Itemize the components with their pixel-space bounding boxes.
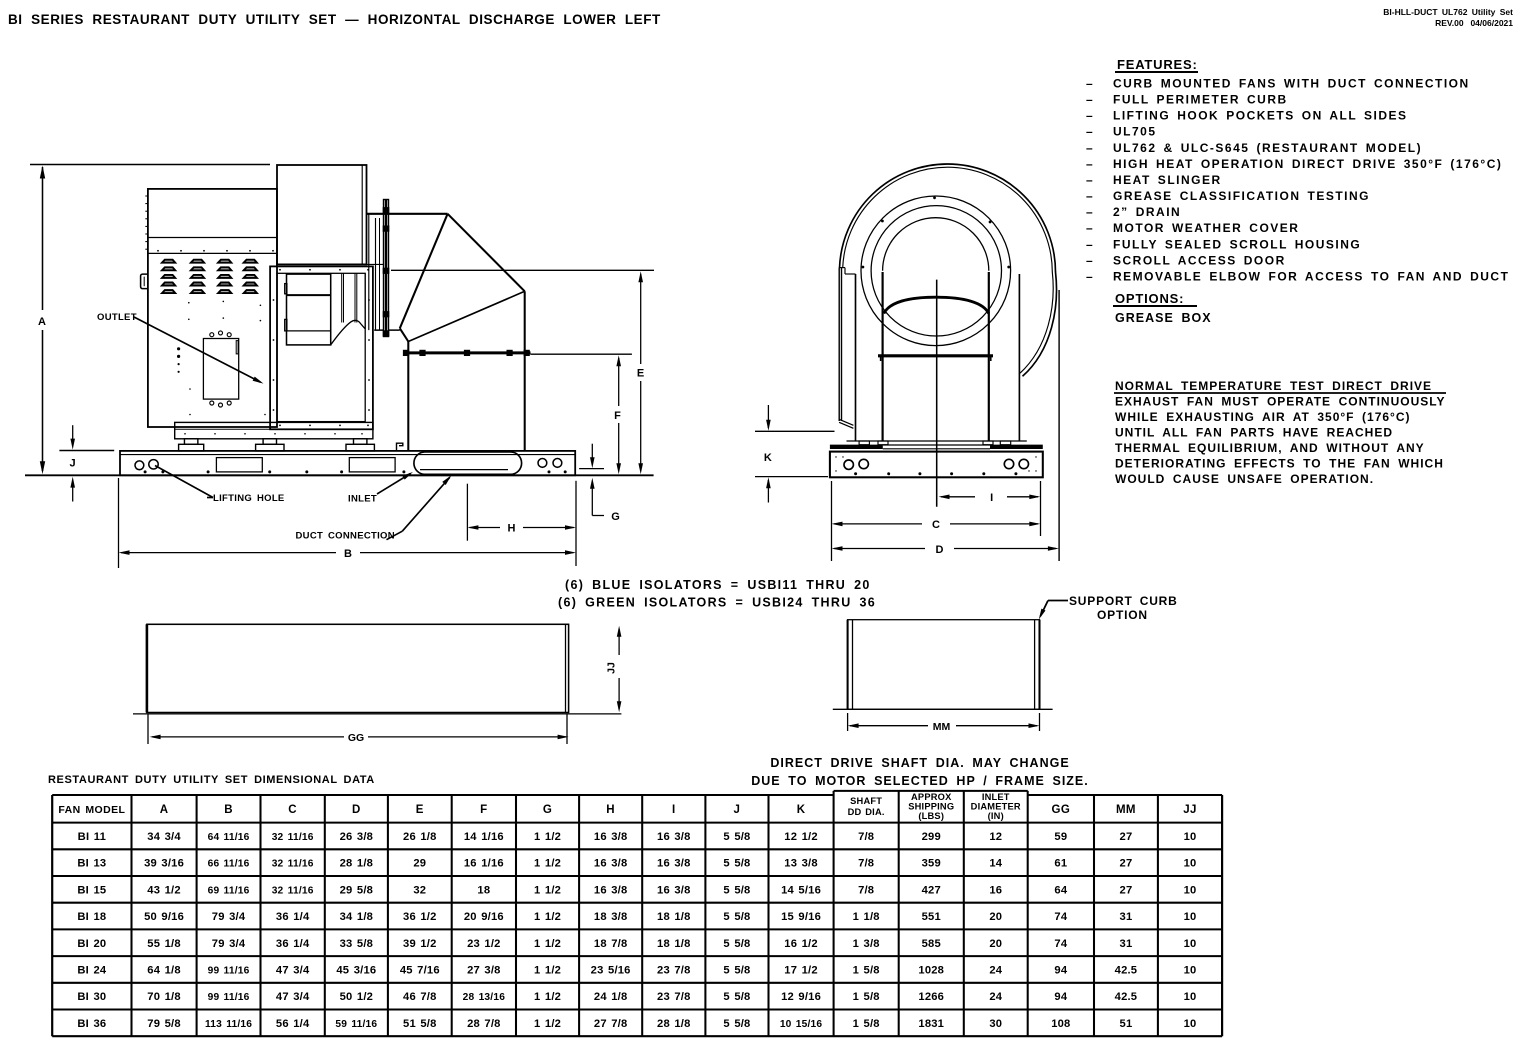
svg-text:BI 13: BI 13 bbox=[77, 858, 106, 870]
svg-text:UL762 & ULC-S645 (RESTAURANT M: UL762 & ULC-S645 (RESTAURANT MODEL) bbox=[1113, 141, 1422, 155]
svg-text:18 1/8: 18 1/8 bbox=[657, 938, 691, 950]
svg-text:32 11/16: 32 11/16 bbox=[272, 859, 314, 870]
svg-text:13 3/8: 13 3/8 bbox=[784, 858, 818, 870]
svg-text:10: 10 bbox=[1184, 938, 1197, 950]
svg-text:64: 64 bbox=[1054, 884, 1067, 896]
svg-text:INLET: INLET bbox=[348, 494, 377, 505]
svg-text:33 5/8: 33 5/8 bbox=[340, 938, 374, 950]
svg-text:DD DIA.: DD DIA. bbox=[848, 807, 885, 817]
svg-text:31: 31 bbox=[1120, 938, 1133, 950]
svg-text:27 3/8: 27 3/8 bbox=[467, 964, 501, 976]
svg-text:585: 585 bbox=[922, 938, 941, 950]
svg-text:INLET: INLET bbox=[982, 792, 1010, 802]
svg-text:34 1/8: 34 1/8 bbox=[340, 911, 374, 923]
svg-text:551: 551 bbox=[922, 911, 941, 923]
svg-text:1028: 1028 bbox=[918, 964, 944, 976]
svg-text:K: K bbox=[764, 452, 772, 464]
svg-text:DIRECT DRIVE SHAFT DIA. MAY CH: DIRECT DRIVE SHAFT DIA. MAY CHANGE bbox=[770, 756, 1069, 770]
svg-text:E: E bbox=[637, 368, 644, 380]
svg-text:FEATURES:: FEATURES: bbox=[1117, 57, 1198, 72]
svg-text:14 1/16: 14 1/16 bbox=[464, 831, 504, 843]
svg-text:50 1/2: 50 1/2 bbox=[340, 991, 374, 1003]
svg-text:J: J bbox=[734, 804, 741, 816]
svg-text:28 13/16: 28 13/16 bbox=[463, 992, 506, 1003]
svg-text:WHILE EXHAUSTING AIR AT 350°F: WHILE EXHAUSTING AIR AT 350°F (176°C) bbox=[1115, 410, 1411, 424]
svg-text:16 1/2: 16 1/2 bbox=[784, 938, 818, 950]
svg-text:51 5/8: 51 5/8 bbox=[403, 1018, 437, 1030]
svg-text:BI 36: BI 36 bbox=[77, 1018, 106, 1030]
svg-text:–: – bbox=[1086, 93, 1093, 107]
svg-text:–: – bbox=[1086, 221, 1093, 235]
svg-text:12: 12 bbox=[989, 831, 1002, 843]
svg-text:10 15/16: 10 15/16 bbox=[780, 1019, 823, 1030]
svg-text:MM: MM bbox=[933, 721, 951, 733]
svg-text:UL705: UL705 bbox=[1113, 125, 1157, 139]
svg-text:A: A bbox=[38, 316, 46, 328]
svg-text:WOULD CAUSE UNSAFE OPERATION.: WOULD CAUSE UNSAFE OPERATION. bbox=[1115, 472, 1374, 486]
svg-text:E: E bbox=[416, 804, 424, 816]
svg-text:F: F bbox=[480, 804, 487, 816]
svg-text:24: 24 bbox=[989, 991, 1002, 1003]
svg-text:45 7/16: 45 7/16 bbox=[400, 964, 440, 976]
svg-text:29: 29 bbox=[413, 858, 426, 870]
svg-text:64 1/8: 64 1/8 bbox=[147, 964, 181, 976]
svg-text:NORMAL TEMPERATURE TEST DIRECT: NORMAL TEMPERATURE TEST DIRECT DRIVE bbox=[1115, 379, 1432, 393]
svg-text:27: 27 bbox=[1120, 884, 1133, 896]
svg-text:99 11/16: 99 11/16 bbox=[208, 965, 250, 976]
svg-text:16 3/8: 16 3/8 bbox=[594, 858, 628, 870]
svg-text:UNTIL ALL FAN PARTS HAVE REACH: UNTIL ALL FAN PARTS HAVE REACHED bbox=[1115, 426, 1393, 440]
svg-text:39 1/2: 39 1/2 bbox=[403, 938, 437, 950]
svg-text:GG: GG bbox=[348, 732, 364, 744]
svg-text:I: I bbox=[990, 492, 993, 504]
svg-text:74: 74 bbox=[1054, 911, 1067, 923]
svg-text:–: – bbox=[1086, 269, 1093, 283]
svg-text:JJ: JJ bbox=[606, 662, 618, 674]
svg-text:DUE TO MOTOR SELECTED HP / FRA: DUE TO MOTOR SELECTED HP / FRAME SIZE. bbox=[751, 774, 1089, 788]
svg-text:MOTOR WEATHER COVER: MOTOR WEATHER COVER bbox=[1113, 221, 1299, 235]
svg-text:B: B bbox=[344, 548, 352, 560]
svg-text:12 9/16: 12 9/16 bbox=[781, 991, 821, 1003]
svg-text:1 1/2: 1 1/2 bbox=[534, 911, 561, 923]
svg-text:I: I bbox=[672, 804, 676, 816]
svg-text:26 1/8: 26 1/8 bbox=[403, 831, 437, 843]
svg-text:23 1/2: 23 1/2 bbox=[467, 938, 501, 950]
svg-text:–: – bbox=[1086, 77, 1093, 91]
svg-text:16: 16 bbox=[989, 884, 1002, 896]
svg-text:SCROLL ACCESS DOOR: SCROLL ACCESS DOOR bbox=[1113, 253, 1286, 267]
svg-text:GG: GG bbox=[1051, 804, 1070, 816]
svg-text:32 11/16: 32 11/16 bbox=[272, 832, 314, 843]
svg-text:BI-HLL-DUCT UL762 Utility Set: BI-HLL-DUCT UL762 Utility Set bbox=[1383, 7, 1513, 17]
svg-text:B: B bbox=[224, 804, 233, 816]
svg-text:42.5: 42.5 bbox=[1115, 964, 1138, 976]
svg-text:27: 27 bbox=[1120, 831, 1133, 843]
svg-text:10: 10 bbox=[1184, 911, 1197, 923]
svg-text:32 11/16: 32 11/16 bbox=[272, 885, 314, 896]
svg-text:–: – bbox=[1086, 157, 1093, 171]
svg-text:BI 15: BI 15 bbox=[77, 884, 106, 896]
svg-text:–: – bbox=[1086, 189, 1093, 203]
svg-text:20 9/16: 20 9/16 bbox=[464, 911, 504, 923]
svg-text:34 3/4: 34 3/4 bbox=[147, 831, 181, 843]
svg-text:HEAT SLINGER: HEAT SLINGER bbox=[1113, 173, 1222, 187]
svg-text:45 3/16: 45 3/16 bbox=[336, 964, 376, 976]
svg-text:5 5/8: 5 5/8 bbox=[723, 991, 750, 1003]
svg-text:66 11/16: 66 11/16 bbox=[208, 859, 250, 870]
svg-text:113 11/16: 113 11/16 bbox=[205, 1019, 252, 1030]
svg-text:47 3/4: 47 3/4 bbox=[276, 991, 310, 1003]
svg-text:RESTAURANT DUTY UTILITY SET DI: RESTAURANT DUTY UTILITY SET DIMENSIONAL … bbox=[48, 774, 375, 786]
svg-text:79 5/8: 79 5/8 bbox=[147, 1018, 181, 1030]
svg-text:10: 10 bbox=[1184, 831, 1197, 843]
svg-text:23 7/8: 23 7/8 bbox=[657, 964, 691, 976]
svg-text:18 7/8: 18 7/8 bbox=[594, 938, 628, 950]
svg-text:7/8: 7/8 bbox=[858, 831, 874, 843]
svg-text:FULL PERIMETER CURB: FULL PERIMETER CURB bbox=[1113, 93, 1288, 107]
svg-text:43 1/2: 43 1/2 bbox=[147, 884, 181, 896]
svg-text:D: D bbox=[352, 804, 361, 816]
svg-text:99 11/16: 99 11/16 bbox=[208, 992, 250, 1003]
svg-text:10: 10 bbox=[1184, 964, 1197, 976]
svg-text:5 5/8: 5 5/8 bbox=[723, 964, 750, 976]
svg-text:REMOVABLE ELBOW FOR ACCESS TO: REMOVABLE ELBOW FOR ACCESS TO FAN AND DU… bbox=[1113, 269, 1509, 283]
svg-text:1 1/2: 1 1/2 bbox=[534, 964, 561, 976]
svg-text:24: 24 bbox=[989, 964, 1002, 976]
svg-text:16 3/8: 16 3/8 bbox=[657, 831, 691, 843]
svg-text:10: 10 bbox=[1184, 858, 1197, 870]
svg-text:5 5/8: 5 5/8 bbox=[723, 911, 750, 923]
svg-text:G: G bbox=[543, 804, 552, 816]
svg-text:DETERIORATING EFFECTS TO THE F: DETERIORATING EFFECTS TO THE FAN WHICH bbox=[1115, 457, 1444, 471]
svg-text:BI 18: BI 18 bbox=[77, 911, 106, 923]
svg-text:JJ: JJ bbox=[1183, 804, 1197, 816]
svg-text:23 7/8: 23 7/8 bbox=[657, 991, 691, 1003]
svg-text:36 1/2: 36 1/2 bbox=[403, 911, 437, 923]
svg-text:DUCT CONNECTION: DUCT CONNECTION bbox=[296, 531, 395, 542]
svg-text:OUTLET: OUTLET bbox=[97, 312, 137, 323]
svg-text:GREASE BOX: GREASE BOX bbox=[1115, 311, 1212, 325]
svg-text:5 5/8: 5 5/8 bbox=[723, 884, 750, 896]
svg-text:20: 20 bbox=[989, 938, 1002, 950]
svg-text:24 1/8: 24 1/8 bbox=[594, 991, 628, 1003]
svg-text:1266: 1266 bbox=[918, 991, 944, 1003]
svg-text:APPROX: APPROX bbox=[911, 792, 952, 802]
svg-text:H: H bbox=[508, 523, 516, 535]
svg-text:1 1/2: 1 1/2 bbox=[534, 831, 561, 843]
svg-text:12 1/2: 12 1/2 bbox=[784, 831, 818, 843]
svg-text:30: 30 bbox=[989, 1018, 1002, 1030]
svg-text:56 1/4: 56 1/4 bbox=[276, 1018, 310, 1030]
svg-text:10: 10 bbox=[1184, 1018, 1197, 1030]
svg-text:7/8: 7/8 bbox=[858, 884, 874, 896]
svg-text:–: – bbox=[1086, 173, 1093, 187]
svg-text:BI 30: BI 30 bbox=[77, 991, 106, 1003]
svg-text:MM: MM bbox=[1116, 804, 1136, 816]
svg-text:15 9/16: 15 9/16 bbox=[781, 911, 821, 923]
svg-text:1 1/2: 1 1/2 bbox=[534, 991, 561, 1003]
svg-text:28 1/8: 28 1/8 bbox=[657, 1018, 691, 1030]
svg-text:G: G bbox=[611, 511, 620, 523]
svg-text:39 3/16: 39 3/16 bbox=[144, 858, 184, 870]
svg-text:SHAFT: SHAFT bbox=[850, 796, 882, 806]
svg-text:J: J bbox=[69, 458, 75, 470]
svg-text:59 11/16: 59 11/16 bbox=[335, 1019, 377, 1030]
svg-text:BI 24: BI 24 bbox=[77, 964, 107, 976]
svg-text:OPTION: OPTION bbox=[1097, 608, 1148, 622]
svg-text:26 3/8: 26 3/8 bbox=[340, 831, 374, 843]
svg-text:17 1/2: 17 1/2 bbox=[784, 964, 818, 976]
svg-text:(LBS): (LBS) bbox=[918, 811, 944, 821]
svg-text:94: 94 bbox=[1054, 991, 1067, 1003]
svg-text:K: K bbox=[797, 804, 806, 816]
svg-text:A: A bbox=[160, 804, 169, 816]
svg-text:F: F bbox=[614, 410, 621, 422]
svg-text:–: – bbox=[1086, 205, 1093, 219]
svg-text:51: 51 bbox=[1120, 1018, 1133, 1030]
svg-text:61: 61 bbox=[1054, 858, 1067, 870]
svg-text:1 5/8: 1 5/8 bbox=[853, 991, 880, 1003]
svg-text:–: – bbox=[1086, 237, 1093, 251]
svg-text:1 1/2: 1 1/2 bbox=[534, 1018, 561, 1030]
svg-text:31: 31 bbox=[1120, 911, 1133, 923]
svg-text:50 9/16: 50 9/16 bbox=[144, 911, 184, 923]
svg-text:1 1/2: 1 1/2 bbox=[534, 858, 561, 870]
svg-text:29 5/8: 29 5/8 bbox=[340, 884, 374, 896]
svg-text:DIAMETER: DIAMETER bbox=[971, 802, 1021, 812]
svg-text:7/8: 7/8 bbox=[858, 858, 874, 870]
svg-text:36 1/4: 36 1/4 bbox=[276, 938, 310, 950]
svg-text:16 3/8: 16 3/8 bbox=[657, 858, 691, 870]
svg-text:42.5: 42.5 bbox=[1115, 991, 1138, 1003]
svg-text:10: 10 bbox=[1184, 991, 1197, 1003]
svg-text:46 7/8: 46 7/8 bbox=[403, 991, 437, 1003]
svg-text:64 11/16: 64 11/16 bbox=[208, 832, 250, 843]
svg-text:359: 359 bbox=[922, 858, 941, 870]
svg-text:79 3/4: 79 3/4 bbox=[212, 911, 246, 923]
svg-text:28 7/8: 28 7/8 bbox=[467, 1018, 501, 1030]
svg-text:94: 94 bbox=[1054, 964, 1067, 976]
svg-text:1 1/8: 1 1/8 bbox=[853, 911, 880, 923]
svg-text:1 3/8: 1 3/8 bbox=[853, 938, 880, 950]
svg-text:27: 27 bbox=[1120, 858, 1133, 870]
svg-text:5 5/8: 5 5/8 bbox=[723, 1018, 750, 1030]
svg-text:FAN MODEL: FAN MODEL bbox=[58, 804, 125, 816]
svg-text:–: – bbox=[1086, 125, 1093, 139]
svg-text:CURB MOUNTED FANS WITH DUCT CO: CURB MOUNTED FANS WITH DUCT CONNECTION bbox=[1113, 77, 1470, 91]
svg-text:REV.00 04/06/2021: REV.00 04/06/2021 bbox=[1435, 18, 1513, 28]
svg-text:1831: 1831 bbox=[918, 1018, 944, 1030]
svg-text:H: H bbox=[606, 804, 615, 816]
svg-text:299: 299 bbox=[922, 831, 941, 843]
svg-text:1 5/8: 1 5/8 bbox=[853, 964, 880, 976]
svg-text:SUPPORT CURB: SUPPORT CURB bbox=[1069, 594, 1178, 608]
svg-text:18 1/8: 18 1/8 bbox=[657, 911, 691, 923]
svg-text:18: 18 bbox=[477, 884, 490, 896]
svg-text:32: 32 bbox=[413, 884, 426, 896]
svg-text:16 1/16: 16 1/16 bbox=[464, 858, 504, 870]
svg-text:(6) GREEN ISOLATORS = USBI24 T: (6) GREEN ISOLATORS = USBI24 THRU 36 bbox=[558, 596, 876, 610]
svg-text:20: 20 bbox=[989, 911, 1002, 923]
svg-text:1 1/2: 1 1/2 bbox=[534, 938, 561, 950]
svg-text:14 5/16: 14 5/16 bbox=[781, 884, 821, 896]
svg-text:C: C bbox=[932, 519, 940, 531]
svg-text:GREASE CLASSIFICATION TESTING: GREASE CLASSIFICATION TESTING bbox=[1113, 189, 1370, 203]
svg-text:14: 14 bbox=[989, 858, 1002, 870]
svg-text:59: 59 bbox=[1054, 831, 1067, 843]
svg-text:47 3/4: 47 3/4 bbox=[276, 964, 310, 976]
svg-text:BI 20: BI 20 bbox=[77, 938, 106, 950]
svg-text:74: 74 bbox=[1054, 938, 1067, 950]
svg-text:OPTIONS:: OPTIONS: bbox=[1115, 291, 1184, 306]
svg-text:SHIPPING: SHIPPING bbox=[908, 802, 954, 812]
svg-text:427: 427 bbox=[922, 884, 941, 896]
svg-text:5 5/8: 5 5/8 bbox=[723, 831, 750, 843]
svg-text:10: 10 bbox=[1184, 884, 1197, 896]
svg-text:108: 108 bbox=[1051, 1018, 1070, 1030]
svg-text:LIFTING HOOK POCKETS ON ALL SI: LIFTING HOOK POCKETS ON ALL SIDES bbox=[1113, 109, 1408, 123]
svg-text:HIGH HEAT OPERATION DIRECT DRI: HIGH HEAT OPERATION DIRECT DRIVE 350°F (… bbox=[1113, 157, 1502, 171]
svg-text:2” DRAIN: 2” DRAIN bbox=[1113, 205, 1181, 219]
svg-text:79 3/4: 79 3/4 bbox=[212, 938, 246, 950]
svg-text:27 7/8: 27 7/8 bbox=[594, 1018, 628, 1030]
svg-text:–: – bbox=[1086, 109, 1093, 123]
svg-text:THERMAL EQUILIBRIUM, AND WITHO: THERMAL EQUILIBRIUM, AND WITHOUT ANY bbox=[1115, 441, 1425, 455]
svg-text:(6) BLUE ISOLATORS = USBI11 TH: (6) BLUE ISOLATORS = USBI11 THRU 20 bbox=[565, 578, 871, 592]
svg-text:1 5/8: 1 5/8 bbox=[853, 1018, 880, 1030]
svg-text:55 1/8: 55 1/8 bbox=[147, 938, 181, 950]
svg-text:FULLY SEALED SCROLL HOUSING: FULLY SEALED SCROLL HOUSING bbox=[1113, 237, 1361, 251]
svg-text:5 5/8: 5 5/8 bbox=[723, 938, 750, 950]
svg-text:5 5/8: 5 5/8 bbox=[723, 858, 750, 870]
svg-text:16 3/8: 16 3/8 bbox=[657, 884, 691, 896]
svg-text:BI 11: BI 11 bbox=[78, 831, 106, 843]
svg-text:1 1/2: 1 1/2 bbox=[534, 884, 561, 896]
svg-text:LIFTING HOLE: LIFTING HOLE bbox=[213, 493, 285, 504]
svg-text:36 1/4: 36 1/4 bbox=[276, 911, 310, 923]
svg-text:–: – bbox=[1086, 253, 1093, 267]
svg-text:23 5/16: 23 5/16 bbox=[591, 964, 631, 976]
svg-text:D: D bbox=[936, 544, 944, 556]
svg-text:(IN): (IN) bbox=[988, 811, 1004, 821]
svg-text:69 11/16: 69 11/16 bbox=[208, 885, 250, 896]
svg-text:BI SERIES RESTAURANT DUTY UTIL: BI SERIES RESTAURANT DUTY UTILITY SET — … bbox=[8, 12, 661, 27]
svg-text:EXHAUST FAN MUST OPERATE CONTI: EXHAUST FAN MUST OPERATE CONTINUOUSLY bbox=[1115, 395, 1446, 409]
svg-text:C: C bbox=[288, 804, 297, 816]
svg-text:–: – bbox=[1086, 141, 1093, 155]
svg-text:16 3/8: 16 3/8 bbox=[594, 884, 628, 896]
svg-text:18 3/8: 18 3/8 bbox=[594, 911, 628, 923]
svg-text:70 1/8: 70 1/8 bbox=[147, 991, 181, 1003]
svg-text:28 1/8: 28 1/8 bbox=[340, 858, 374, 870]
svg-text:16 3/8: 16 3/8 bbox=[594, 831, 628, 843]
